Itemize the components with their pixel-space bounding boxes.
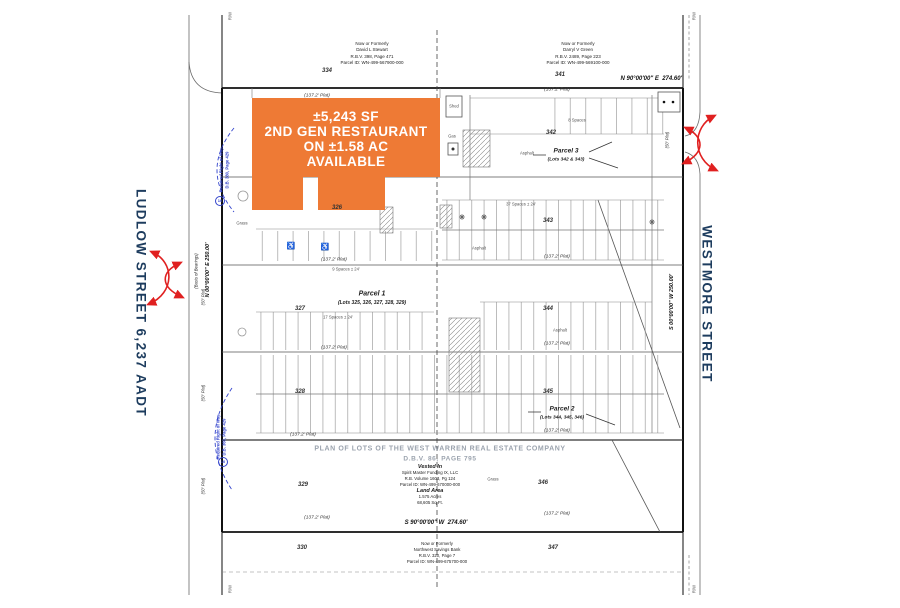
lot-number-343: 343 [543,218,553,224]
banner-available: AVAILABLE [252,154,440,169]
plat-note-137-1: (137.2' Plat) [304,94,330,99]
required-row-note-bottom: Required Right of Way D.B. 360, Page 429 [215,415,226,460]
bearing-north: N 90°00'00" E 274.60' [621,76,683,82]
asphalt-label-3: Asphalt [472,246,486,251]
lot-number-341: 341 [555,72,565,78]
vested-volume: R.B. Volume 1603, Pg 124 [400,476,460,482]
owner-tr-line4: Parcel ID: WN-499-569100-000 [546,60,609,66]
banner-acreage: ON ±1.58 AC [252,139,440,154]
rw-note-3: R/W [228,12,233,20]
lot-number-342: 342 [546,130,556,136]
lot-number-346: 346 [538,480,548,486]
rw-note-2: R/W [692,585,697,593]
spaces-9-label: 9 Spaces ± 24' [332,267,360,272]
shed-label: Shed [449,104,459,109]
plat-title-line2: D.B.V. 86, PAGE 795 [403,456,476,463]
plat-note-50-2: (50' Plat) [201,385,206,402]
vested-block: Vested In Spirit Master Funding IX, LLC … [400,464,460,487]
bearing-west: N 00°00'00" E 250.00' [205,243,211,298]
vested-entity: Spirit Master Funding IX, LLC [400,470,460,476]
handicap-icon: ♿ [321,243,330,251]
asphalt-label-2: Asphalt [553,328,567,333]
spaces-8-label: 8 Spaces [568,118,585,123]
plat-note-137-3: (137.2' Plat) [321,258,347,263]
banner-use: 2ND GEN RESTAURANT [252,124,440,139]
plat-note-137-10: (137.2' Plat) [544,512,570,517]
site-plan-canvas: LUDLOW STREET 6,237 AADT WESTMORE STREET… [0,0,900,608]
bearing-west-note: (Basis of Bearings) [194,253,199,288]
row-note-badge-top: 10 [215,196,225,206]
parcel1-lots: (Lots 325, 326, 327, 328, 329) [338,300,406,306]
banner-size: ±5,243 SF [252,109,440,124]
handicap-icon: ♿ [287,242,296,250]
lot-number-329: 329 [298,482,308,488]
bearing-east: S 00°00'00" W 250.00' [669,274,675,330]
plat-note-137-4: (137.2' Plat) [544,255,570,260]
street-label-ludlow: LUDLOW STREET 6,237 AADT [134,189,149,417]
plat-note-137-9: (137.2' Plat) [304,516,330,521]
rw-note-1: R/W [692,12,697,20]
rw-note-4: R/W [228,585,233,593]
plat-note-50-3: (50' Plat) [201,478,206,495]
plat-note-50-4: (50' Plat) [665,132,670,149]
owner-block-top-left: Now or Formerly David L Stewart R.B.V. 3… [340,41,403,66]
owner-block-bottom: Now or Formerly Northwest Savings Bank R… [407,541,467,565]
parcel2-lots: (Lots 344, 345, 346) [540,416,584,421]
lot-number-326: 326 [332,205,342,211]
row-note-badge-bottom: 10 [218,457,228,467]
parcel3-label: Parcel 3 [554,148,579,155]
spaces-37-label: 37 Spaces ± 24' [506,202,536,207]
street-label-westmore: WESTMORE STREET [700,225,715,383]
bearing-south-dist: 274.60' [448,520,468,526]
bearing-south-angle: S 90°00'00" W [405,520,445,526]
lot-number-328: 328 [295,389,305,395]
bearing-north-dist: 274.60' [662,76,682,82]
parcel2-label: Parcel 2 [550,406,575,413]
required-row-top-line1: Required Right of Way [218,148,224,193]
bearing-north-angle: N 90°00'00" E [621,76,659,82]
lot-number-345: 345 [543,389,553,395]
plat-title-line1: PLAN OF LOTS OF THE WEST WARREN REAL EST… [314,446,565,453]
lot-number-347: 347 [548,545,558,551]
owner-tr-line3: R.B.V. 2489, Page 223 [546,54,609,60]
availability-banner: ±5,243 SF 2ND GEN RESTAURANT ON ±1.58 AC… [252,109,440,169]
plat-note-137-5: (137.2' Plat) [321,346,347,351]
bearing-south: S 90°00'00" W 274.60' [405,520,468,526]
required-row-bottom-line1: Required Right of Way [215,415,221,460]
plat-note-137-2: (137.2' Plat) [544,88,570,93]
land-area-acres: 1.575 Acres [417,494,444,500]
plat-note-50-1: (50' Plat) [201,289,206,306]
grass-label-2: Grass [487,477,498,482]
vested-parcel-id: Parcel ID: WN-499-670000-000 [400,482,460,488]
asphalt-label-1: Asphalt [520,151,534,156]
gas-label: Gas [448,134,456,139]
owner-block-top-right: Now or Formerly Darryl V Green R.B.V. 24… [546,41,609,66]
parcel1-label: Parcel 1 [359,291,386,298]
lot-number-330: 330 [297,545,307,551]
lot-number-344: 344 [543,306,553,312]
spaces-17-label: 17 Spaces ± 24' [323,315,353,320]
required-row-top-line2: D.B. 380, Page 429 [224,148,230,193]
lot-number-334: 334 [322,68,332,74]
grass-label-1: Grass [236,221,247,226]
land-area-block: Land Area 1.575 Acres 68,605 Sq.Ft. [417,488,444,506]
plat-note-137-8: (137.2' Plat) [544,429,570,434]
required-row-note-top: Required Right of Way D.B. 380, Page 429 [218,148,229,193]
owner-tl-line4: Parcel ID: WN-499-567900-000 [340,60,403,66]
owner-b-line4: Parcel ID: WN-499-675700-000 [407,559,467,565]
land-area-sqft: 68,605 Sq.Ft. [417,500,444,506]
plat-note-137-7: (137.2' Plat) [290,433,316,438]
parcel3-lots: (Lots 342 & 343) [548,158,585,163]
required-row-bottom-line2: D.B. 360, Page 429 [221,415,227,460]
plat-note-137-6: (137.2' Plat) [544,342,570,347]
lot-number-327: 327 [295,306,305,312]
